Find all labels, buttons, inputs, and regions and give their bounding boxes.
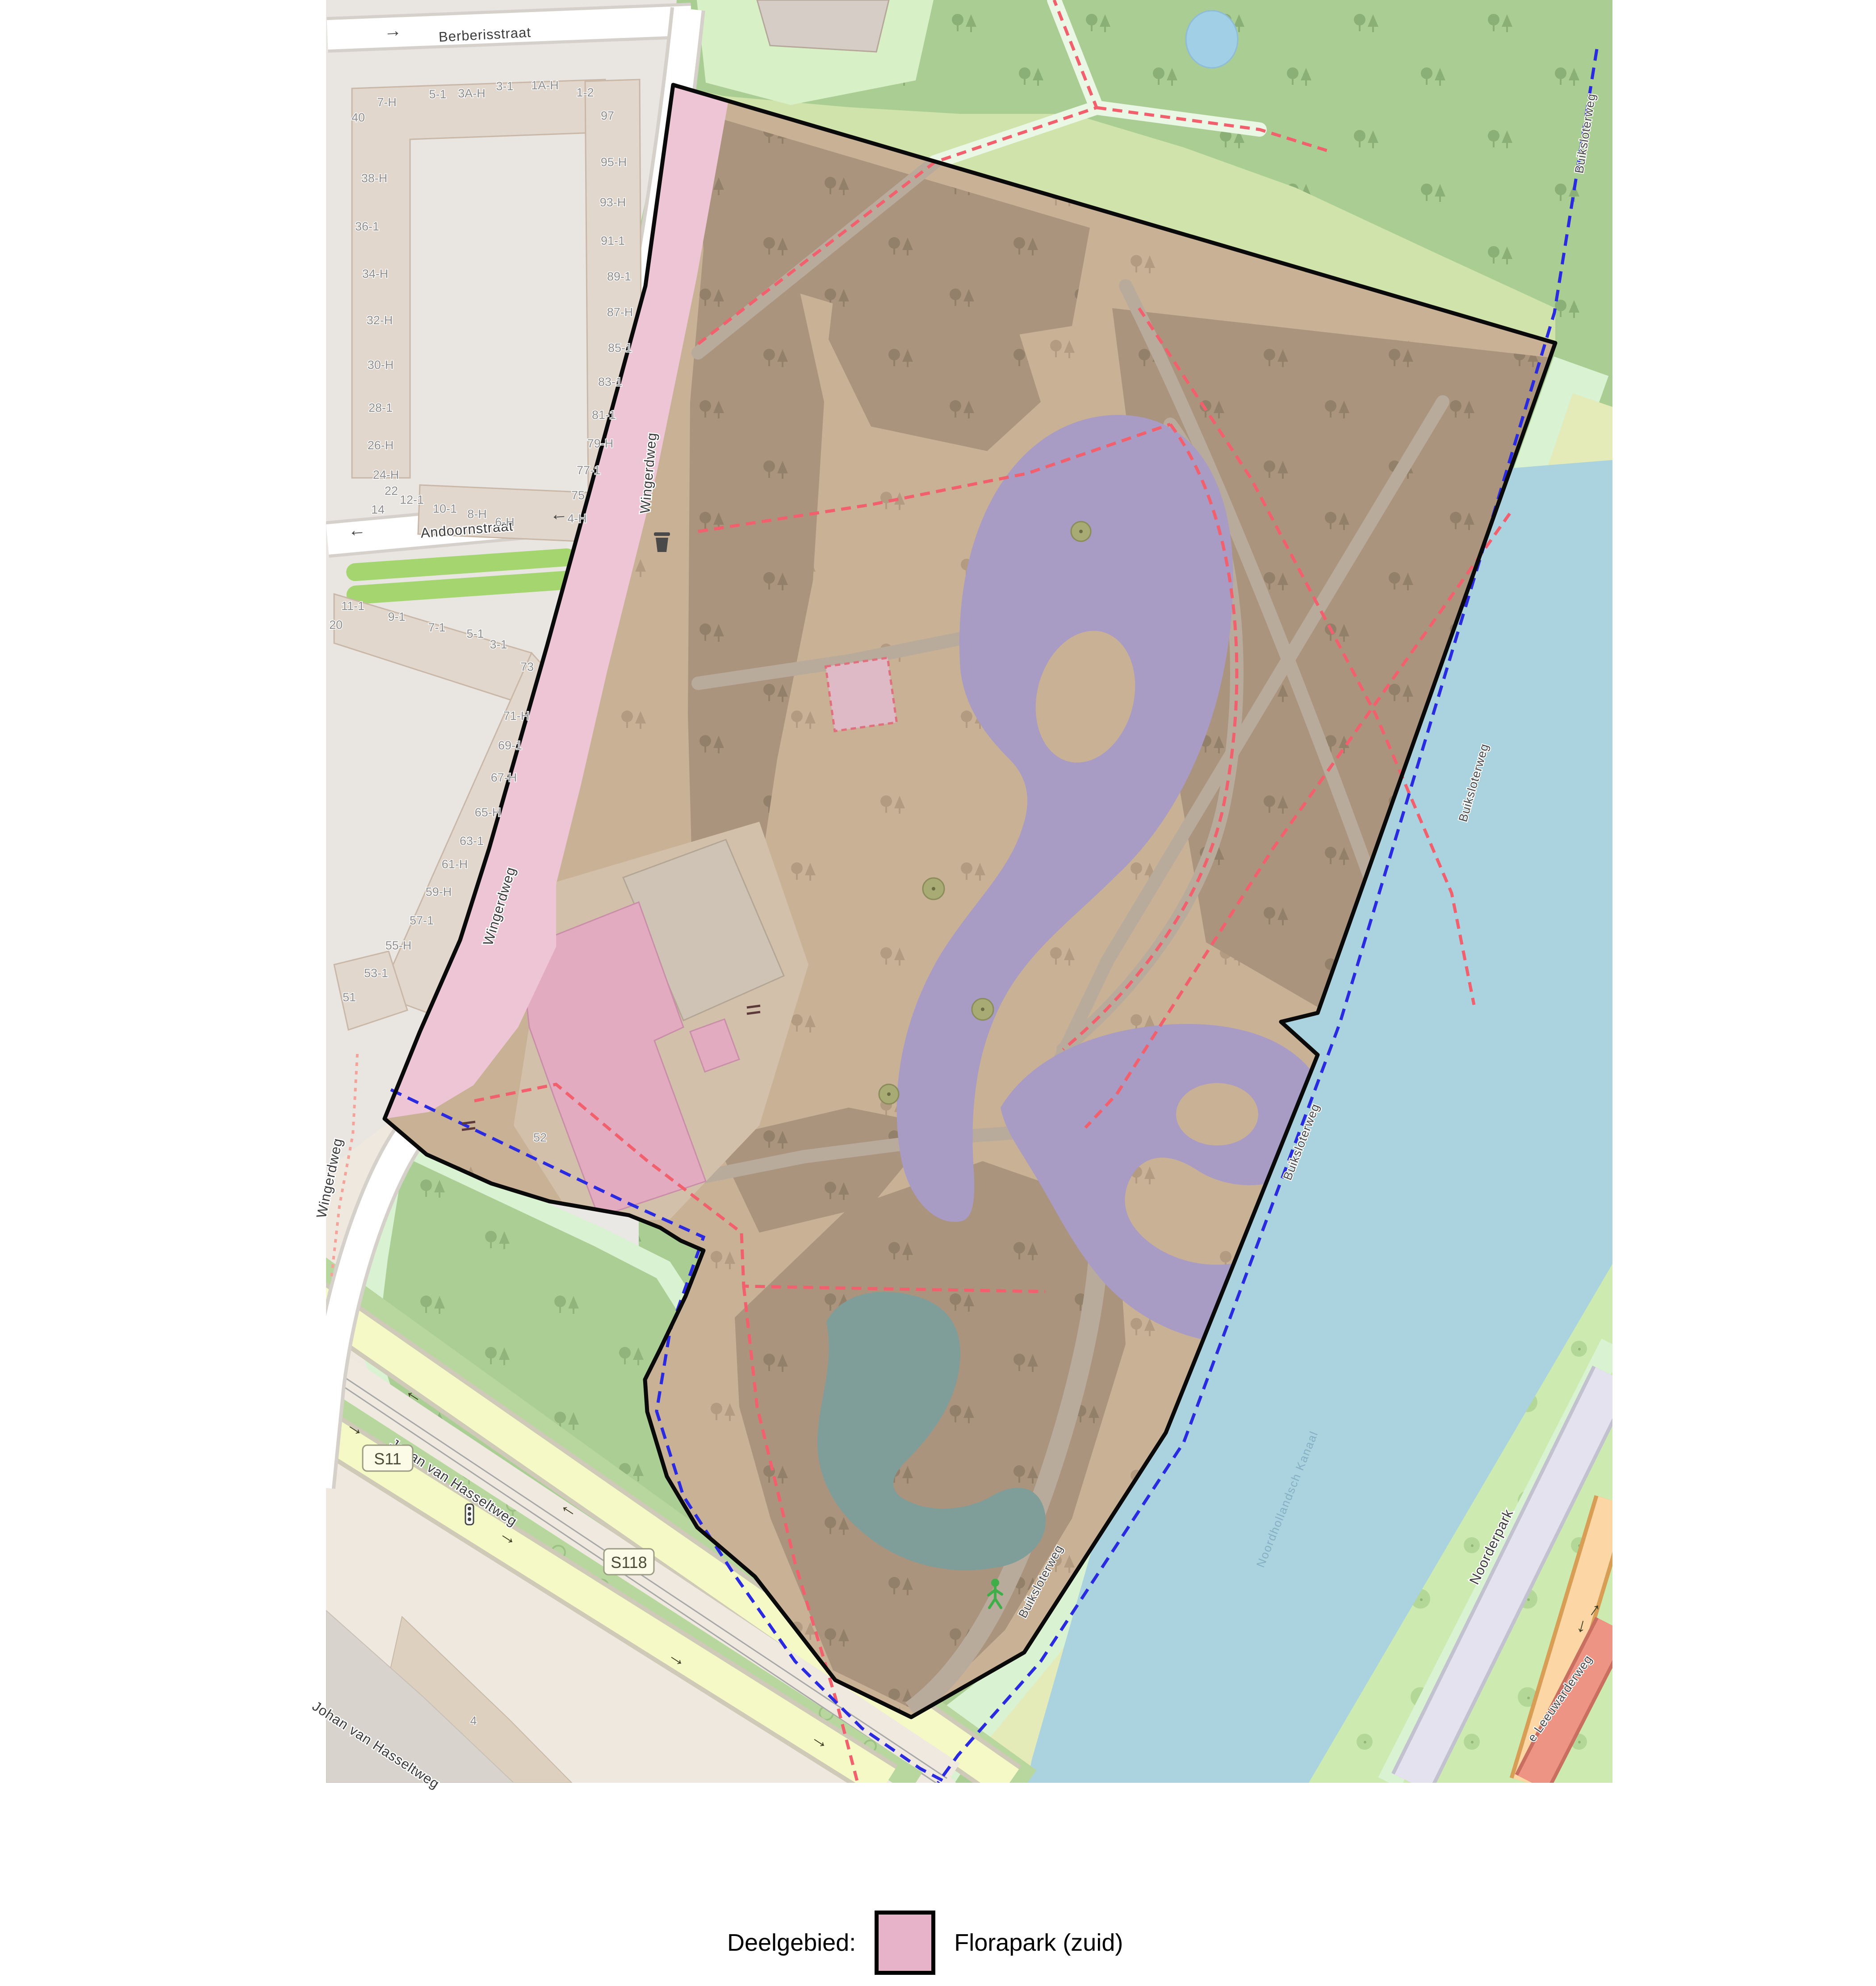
house-number: 7-H <box>377 96 397 109</box>
house-number: 73 <box>520 660 534 673</box>
house-number: 7-1 <box>428 621 445 634</box>
house-number: 83-1 <box>598 375 622 389</box>
pond-small <box>1186 11 1238 68</box>
house-number: 77-1 <box>577 464 601 477</box>
house-number: 26-H <box>368 439 394 452</box>
house-number: 20 <box>329 618 343 631</box>
road-badge-s118: S118 <box>604 1549 654 1575</box>
house-number: 12-1 <box>400 493 424 506</box>
playground <box>826 658 897 731</box>
house-number: 87-H <box>607 305 633 319</box>
house-number: 1-2 <box>576 86 594 99</box>
house-number: 11-1 <box>341 599 364 613</box>
road-badge-s11: S11 <box>363 1445 413 1471</box>
house-number: 95-H <box>601 155 627 169</box>
house-number: 30-H <box>368 358 394 372</box>
house-number: 67-H <box>491 771 517 784</box>
house-number: 65-H <box>475 806 501 819</box>
house-number: 93-H <box>600 196 626 209</box>
map-canvas[interactable]: BerberisstraatAndoornstraatWingerdwegWin… <box>0 0 1876 1984</box>
oneway-arrow: ← <box>549 504 569 525</box>
house-number: 5-1 <box>429 88 446 101</box>
oneway-arrow: → <box>383 21 402 41</box>
house-number: 91-1 <box>601 234 625 247</box>
house-number: 52 <box>533 1131 547 1144</box>
house-number: 61-H <box>442 857 468 871</box>
house-number: 3-1 <box>496 79 513 93</box>
house-number: 1A-H <box>531 79 559 92</box>
house-number: 38-H <box>361 171 388 185</box>
house-number: 14 <box>371 503 385 516</box>
house-number: 4-H <box>567 512 587 525</box>
house-number: 79-H <box>587 437 614 450</box>
house-number: 71-H <box>503 709 530 723</box>
house-number: 40 <box>352 111 365 124</box>
legend-swatch <box>875 1911 935 1975</box>
oneway-arrow: ← <box>348 520 367 541</box>
house-number: 89-1 <box>607 270 631 283</box>
house-number: 81-1 <box>592 408 616 422</box>
house-number: 63-1 <box>460 834 484 848</box>
house-number: 36-1 <box>355 220 379 233</box>
house-number: 75 <box>571 489 585 502</box>
traffic-signal-icon <box>465 1504 473 1525</box>
house-number: 3A-H <box>458 87 486 100</box>
house-number: 85-1 <box>608 341 632 355</box>
house-number: 9-1 <box>388 610 405 623</box>
house-number: 5-1 <box>466 627 484 640</box>
house-number: 53-1 <box>364 966 388 980</box>
house-number: 59-H <box>426 885 452 899</box>
house-number: 55-H <box>385 939 412 952</box>
map-page: BerberisstraatAndoornstraatWingerdwegWin… <box>0 0 1876 1984</box>
house-number: 97 <box>601 109 614 122</box>
house-number: 6-H <box>495 515 515 529</box>
house-number: 10-1 <box>433 502 457 515</box>
house-number: 28-1 <box>368 401 393 414</box>
park-building <box>757 0 889 52</box>
house-number: 34-H <box>362 267 389 280</box>
legend: Deelgebied: Florapark (zuid) <box>727 1911 1123 1975</box>
legend-value: Florapark (zuid) <box>954 1929 1123 1957</box>
svg-text:S118: S118 <box>611 1553 647 1572</box>
house-number: 51 <box>343 991 356 1004</box>
house-number: 57-1 <box>410 914 434 927</box>
house-number: 3-1 <box>490 638 507 651</box>
house-number: 22 <box>385 484 398 498</box>
house-number: 8-H <box>467 507 487 521</box>
legend-label: Deelgebied: <box>727 1929 856 1957</box>
svg-text:S11: S11 <box>374 1450 401 1468</box>
house-number: 4 <box>470 1714 477 1727</box>
house-number: 24-H <box>373 468 399 481</box>
house-number: 69-1 <box>498 739 522 752</box>
house-number: 32-H <box>367 314 393 327</box>
